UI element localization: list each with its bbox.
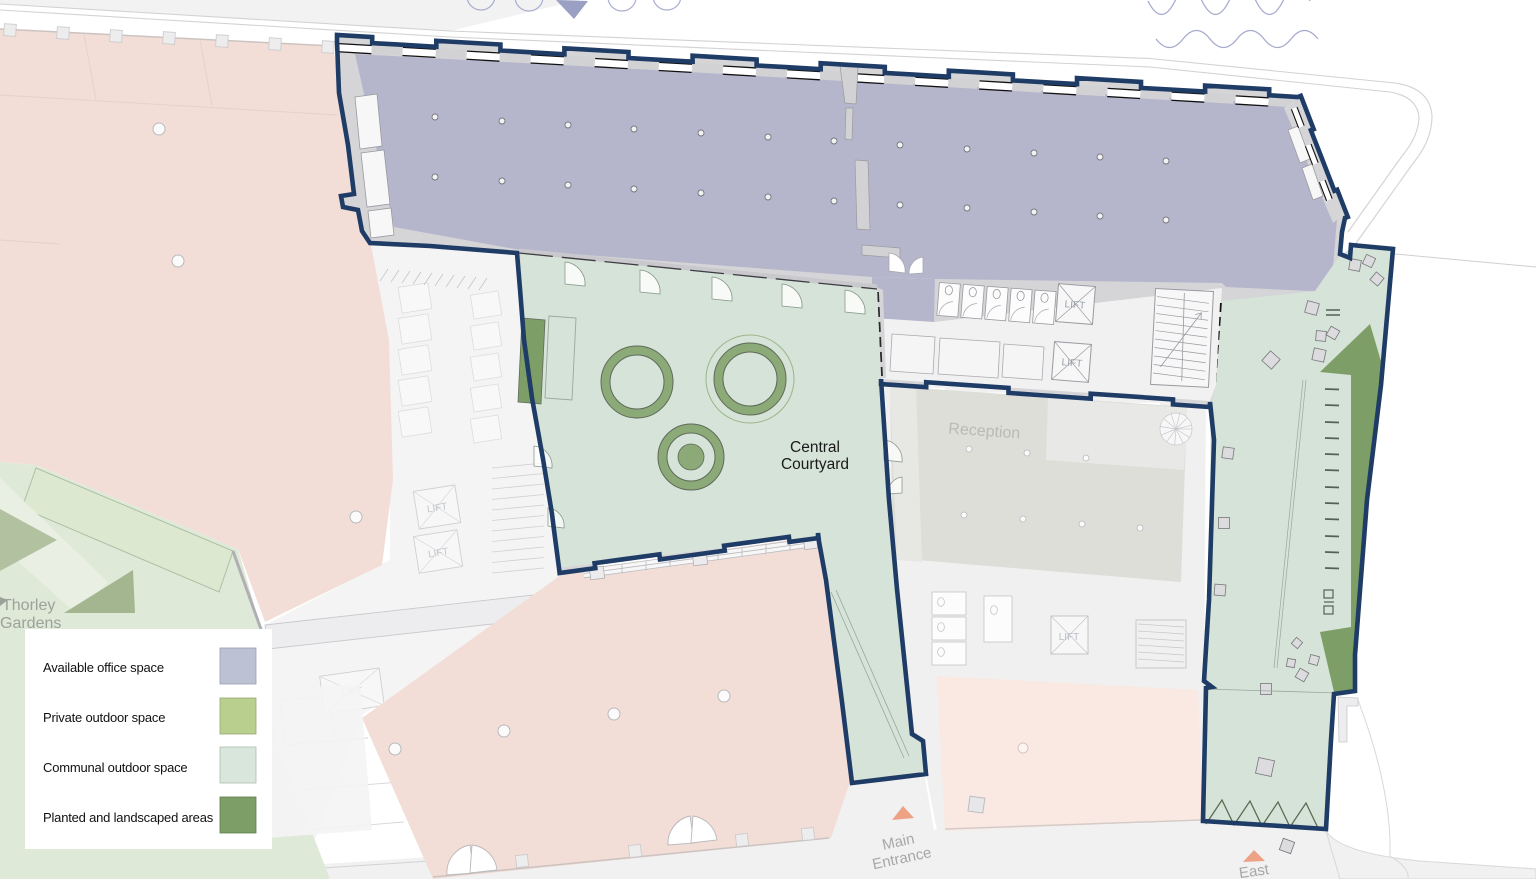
svg-text:LIFT: LIFT bbox=[1064, 299, 1085, 312]
svg-text:Communal outdoor space: Communal outdoor space bbox=[43, 760, 187, 775]
svg-text:Central: Central bbox=[790, 439, 840, 456]
svg-text:Available office space: Available office space bbox=[43, 660, 164, 675]
svg-text:LIFT: LIFT bbox=[1059, 632, 1080, 643]
svg-text:East: East bbox=[1238, 861, 1271, 879]
svg-text:LIFT: LIFT bbox=[1061, 357, 1082, 370]
svg-text:Thorley: Thorley bbox=[2, 597, 55, 614]
svg-text:Private outdoor space: Private outdoor space bbox=[43, 710, 165, 725]
svg-text:Planted and landscaped areas: Planted and landscaped areas bbox=[43, 810, 214, 825]
svg-text:Courtyard: Courtyard bbox=[781, 456, 849, 473]
